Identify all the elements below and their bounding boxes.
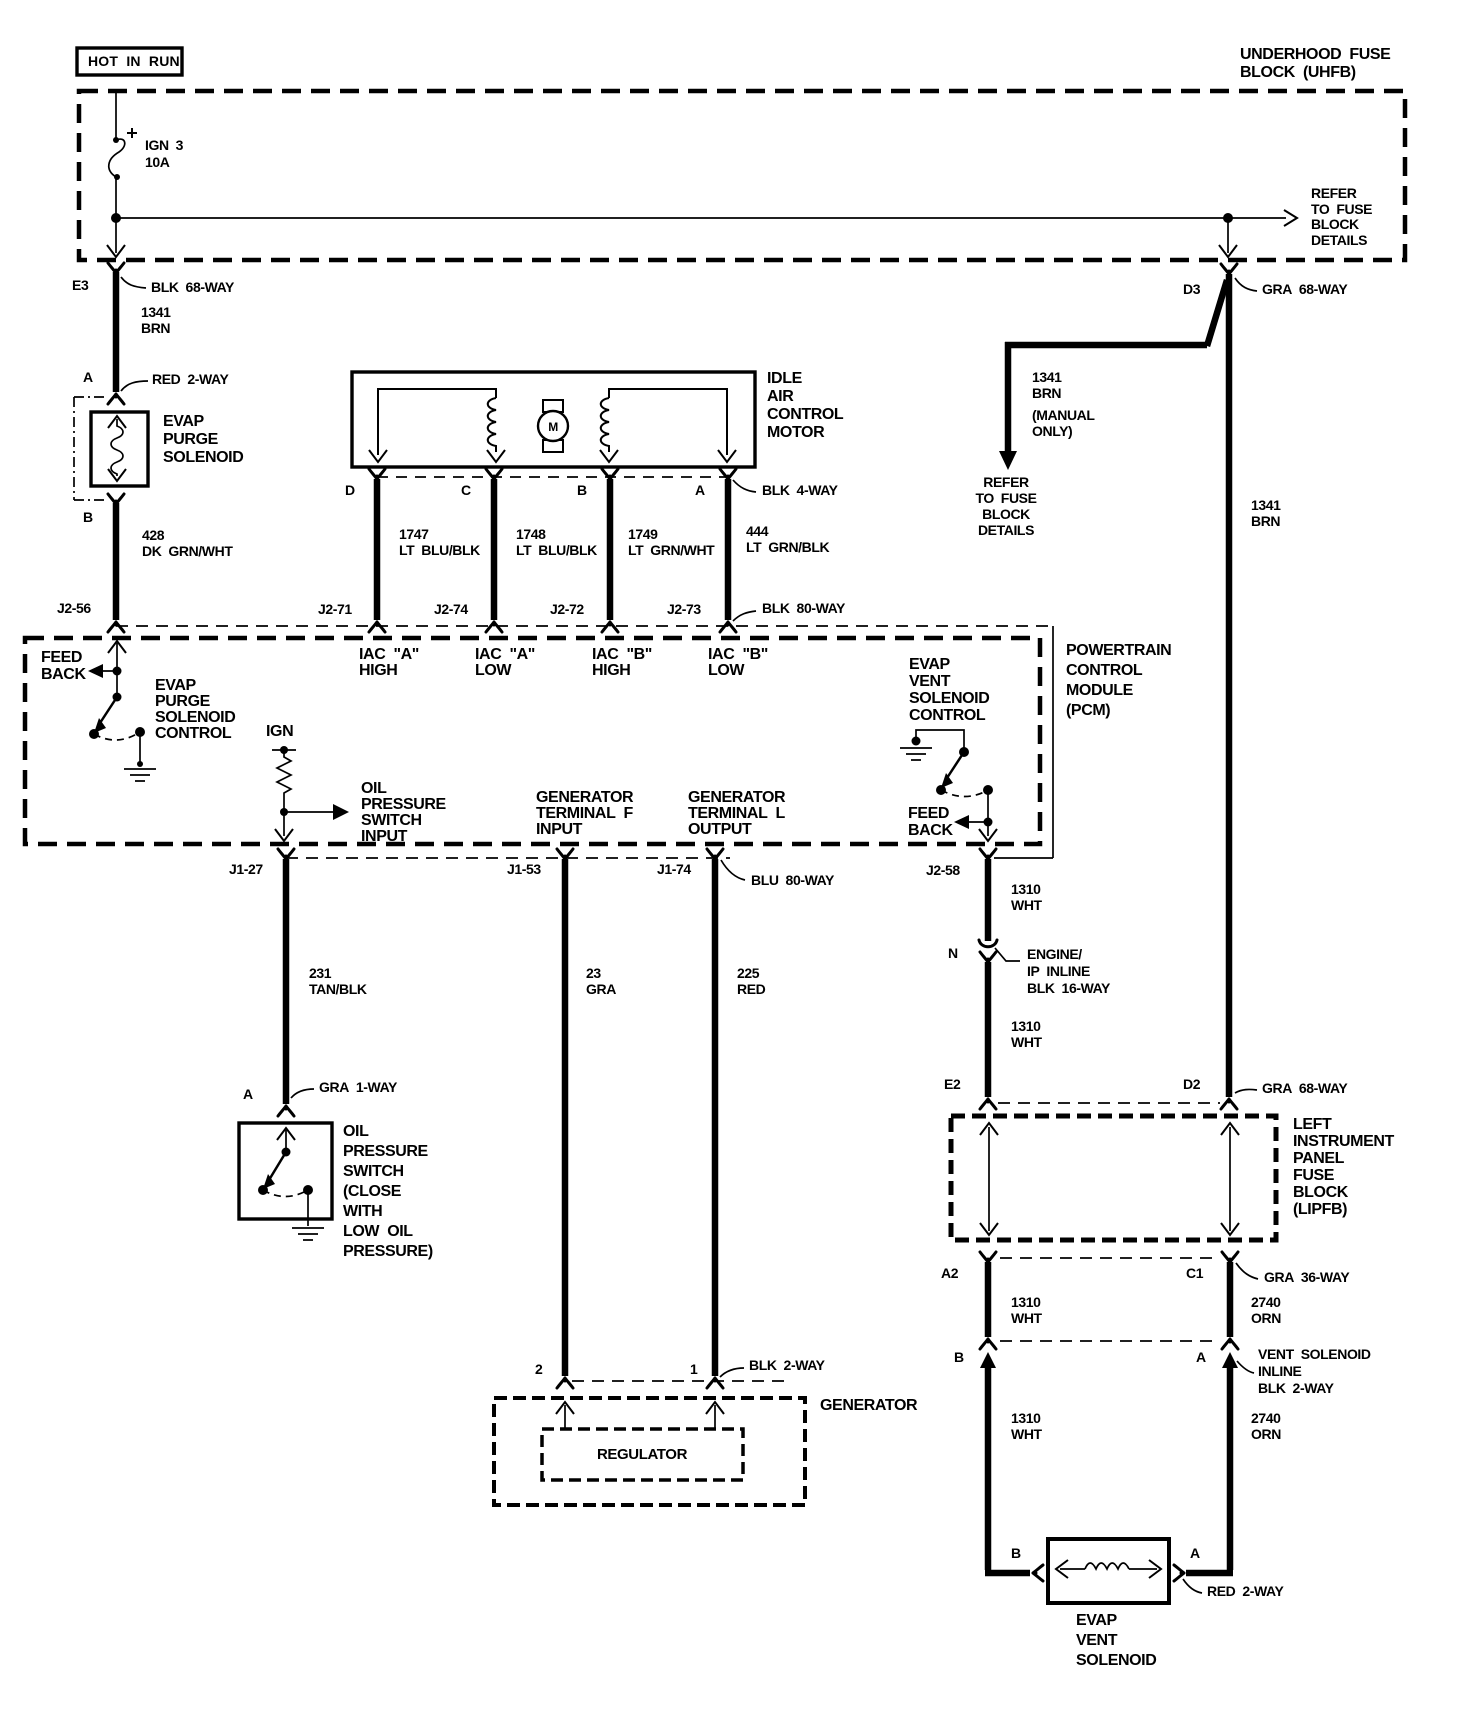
svg-text:WHT: WHT [1011,1034,1043,1050]
svg-text:GENERATOR: GENERATOR [688,789,786,806]
svg-text:J2-58: J2-58 [926,862,960,878]
svg-text:(LIPFB): (LIPFB) [1293,1201,1347,1218]
svg-text:CONTROL: CONTROL [909,707,986,724]
svg-text:444: 444 [746,523,769,539]
svg-text:EVAP: EVAP [155,677,197,694]
svg-text:BLOCK: BLOCK [982,506,1030,522]
svg-text:GRA 1-WAY: GRA 1-WAY [319,1079,398,1095]
svg-text:B: B [1011,1545,1021,1561]
svg-text:IAC "A": IAC "A" [475,646,535,663]
svg-text:RED 2-WAY: RED 2-WAY [1207,1583,1284,1599]
svg-text:1341: 1341 [141,304,171,320]
svg-text:EVAP: EVAP [163,413,205,430]
svg-text:GENERATOR: GENERATOR [820,1397,918,1414]
svg-text:LOW: LOW [475,662,512,679]
svg-text:GRA 36-WAY: GRA 36-WAY [1264,1269,1350,1285]
svg-text:BRN: BRN [141,320,170,336]
svg-text:1310: 1310 [1011,881,1041,897]
svg-text:GRA 68-WAY: GRA 68-WAY [1262,281,1348,297]
svg-text:IAC "B": IAC "B" [708,646,768,663]
svg-text:REFER: REFER [1311,185,1357,201]
svg-text:SWITCH: SWITCH [361,812,422,829]
svg-text:225: 225 [737,965,760,981]
svg-text:PRESSURE): PRESSURE) [343,1243,433,1260]
svg-text:J1-74: J1-74 [657,861,691,877]
svg-text:J2-72: J2-72 [550,601,584,617]
svg-text:B: B [83,509,93,525]
svg-text:SWITCH: SWITCH [343,1163,404,1180]
svg-text:(MANUAL: (MANUAL [1032,407,1095,423]
svg-text:HIGH: HIGH [359,662,397,679]
svg-text:IDLE: IDLE [767,370,803,387]
svg-text:1310: 1310 [1011,1018,1041,1034]
svg-text:1747: 1747 [399,526,429,542]
svg-text:EVAP: EVAP [1076,1612,1118,1629]
svg-text:D3: D3 [1183,281,1201,297]
svg-text:J2-71: J2-71 [318,601,352,617]
svg-text:LOW OIL: LOW OIL [343,1223,413,1240]
svg-text:BLK 4-WAY: BLK 4-WAY [762,482,839,498]
svg-text:GRA 68-WAY: GRA 68-WAY [1262,1080,1348,1096]
svg-text:2740: 2740 [1251,1294,1281,1310]
svg-text:VENT: VENT [1076,1632,1118,1649]
svg-text:IGN: IGN [266,723,293,740]
svg-text:WHT: WHT [1011,1310,1043,1326]
svg-text:VENT SOLENOID: VENT SOLENOID [1258,1346,1371,1362]
svg-text:TO FUSE: TO FUSE [1311,201,1372,217]
svg-text:WHT: WHT [1011,1426,1043,1442]
svg-text:DK GRN/WHT: DK GRN/WHT [142,543,233,559]
svg-text:PURGE: PURGE [155,693,211,710]
svg-text:CONTROL: CONTROL [155,725,232,742]
svg-text:TERMINAL L: TERMINAL L [688,805,786,822]
svg-text:LT BLU/BLK: LT BLU/BLK [516,542,597,558]
svg-text:BLOCK: BLOCK [1311,216,1359,232]
svg-text:IAC "A": IAC "A" [359,646,419,663]
svg-text:A2: A2 [941,1265,959,1281]
svg-text:TO FUSE: TO FUSE [975,490,1036,506]
svg-text:INSTRUMENT: INSTRUMENT [1293,1133,1395,1150]
svg-text:BLK 68-WAY: BLK 68-WAY [151,279,235,295]
svg-text:BLK 2-WAY: BLK 2-WAY [749,1357,826,1373]
svg-text:BLU 80-WAY: BLU 80-WAY [751,872,835,888]
svg-text:231: 231 [309,965,332,981]
svg-text:TERMINAL F: TERMINAL F [536,805,634,822]
svg-text:A: A [83,369,93,385]
svg-text:INLINE: INLINE [1258,1363,1302,1379]
svg-text:WITH: WITH [343,1203,382,1220]
svg-text:RED: RED [737,981,766,997]
svg-text:LT BLU/BLK: LT BLU/BLK [399,542,480,558]
svg-text:1310: 1310 [1011,1294,1041,1310]
svg-text:A: A [695,482,705,498]
svg-text:SOLENOID: SOLENOID [155,709,235,726]
svg-text:PANEL: PANEL [1293,1150,1345,1167]
svg-text:B: B [954,1349,964,1365]
svg-text:E3: E3 [72,277,89,293]
svg-text:PURGE: PURGE [163,431,219,448]
svg-text:FUSE: FUSE [1293,1167,1335,1184]
svg-text:J1-27: J1-27 [229,861,263,877]
svg-text:ONLY): ONLY) [1032,423,1072,439]
svg-text:GRA: GRA [586,981,616,997]
svg-text:SOLENOID: SOLENOID [1076,1652,1156,1669]
svg-text:FEED: FEED [41,649,82,666]
svg-text:LOW: LOW [708,662,745,679]
svg-text:SOLENOID: SOLENOID [163,449,243,466]
svg-text:HOT IN RUN: HOT IN RUN [88,53,180,69]
svg-text:VENT: VENT [909,673,951,690]
svg-text:REGULATOR: REGULATOR [597,1446,688,1463]
svg-text:N: N [948,945,958,961]
svg-text:REFER: REFER [983,474,1029,490]
svg-text:D2: D2 [1183,1076,1201,1092]
svg-text:1341: 1341 [1032,369,1062,385]
svg-text:LT GRN/BLK: LT GRN/BLK [746,539,830,555]
svg-text:1310: 1310 [1011,1410,1041,1426]
svg-text:DETAILS: DETAILS [1311,232,1367,248]
svg-text:IP INLINE: IP INLINE [1027,963,1090,979]
svg-text:LT GRN/WHT: LT GRN/WHT [628,542,715,558]
svg-text:BLK 2-WAY: BLK 2-WAY [1258,1380,1335,1396]
svg-text:AIR: AIR [767,388,794,405]
svg-text:OIL: OIL [343,1123,369,1140]
svg-text:BACK: BACK [908,822,953,839]
svg-text:ORN: ORN [1251,1426,1281,1442]
svg-text:BLOCK: BLOCK [1293,1184,1349,1201]
svg-text:(PCM): (PCM) [1066,702,1110,719]
svg-text:FEED: FEED [908,805,949,822]
svg-text:J2-74: J2-74 [434,601,468,617]
svg-text:(CLOSE: (CLOSE [343,1183,402,1200]
svg-text:INPUT: INPUT [361,828,408,845]
svg-text:INPUT: INPUT [536,821,583,838]
svg-text:CONTROL: CONTROL [767,406,844,423]
svg-text:2: 2 [535,1361,543,1377]
svg-text:DETAILS: DETAILS [978,522,1034,538]
svg-text:RED 2-WAY: RED 2-WAY [152,371,229,387]
svg-text:1: 1 [690,1361,698,1377]
svg-text:ORN: ORN [1251,1310,1281,1326]
svg-text:M: M [548,420,558,434]
svg-text:1749: 1749 [628,526,658,542]
svg-text:A: A [1196,1349,1206,1365]
svg-text:POWERTRAIN: POWERTRAIN [1066,642,1171,659]
svg-text:J2-56: J2-56 [57,600,91,616]
svg-text:BLOCK (UHFB): BLOCK (UHFB) [1240,64,1356,81]
svg-text:D: D [345,482,355,498]
svg-text:J2-73: J2-73 [667,601,701,617]
svg-text:J1-53: J1-53 [507,861,541,877]
svg-text:2740: 2740 [1251,1410,1281,1426]
svg-text:LEFT: LEFT [1293,1116,1332,1133]
svg-text:1341: 1341 [1251,497,1281,513]
svg-text:TAN/BLK: TAN/BLK [309,981,367,997]
svg-text:PRESSURE: PRESSURE [343,1143,429,1160]
svg-text:MOTOR: MOTOR [767,424,825,441]
svg-text:BRN: BRN [1251,513,1280,529]
svg-text:C: C [461,482,471,498]
svg-text:IGN 3: IGN 3 [145,137,184,153]
svg-text:E2: E2 [944,1076,961,1092]
svg-text:A: A [243,1086,253,1102]
svg-text:ENGINE/: ENGINE/ [1027,946,1082,962]
svg-text:SOLENOID: SOLENOID [909,690,989,707]
svg-text:WHT: WHT [1011,897,1043,913]
svg-text:10A: 10A [145,154,170,170]
svg-text:OIL: OIL [361,780,387,797]
svg-text:BACK: BACK [41,666,86,683]
svg-text:C1: C1 [1186,1265,1204,1281]
svg-text:B: B [577,482,587,498]
svg-text:GENERATOR: GENERATOR [536,789,634,806]
svg-text:MODULE: MODULE [1066,682,1134,699]
svg-text:EVAP: EVAP [909,656,951,673]
svg-text:UNDERHOOD FUSE: UNDERHOOD FUSE [1240,46,1391,63]
svg-text:A: A [1190,1545,1200,1561]
svg-text:OUTPUT: OUTPUT [688,821,752,838]
svg-text:BLK 16-WAY: BLK 16-WAY [1027,980,1111,996]
svg-text:1748: 1748 [516,526,546,542]
svg-text:HIGH: HIGH [592,662,630,679]
svg-text:BRN: BRN [1032,385,1061,401]
svg-text:CONTROL: CONTROL [1066,662,1143,679]
svg-text:IAC "B": IAC "B" [592,646,652,663]
svg-text:BLK 80-WAY: BLK 80-WAY [762,600,846,616]
svg-text:428: 428 [142,527,165,543]
svg-text:23: 23 [586,965,601,981]
svg-text:PRESSURE: PRESSURE [361,796,447,813]
